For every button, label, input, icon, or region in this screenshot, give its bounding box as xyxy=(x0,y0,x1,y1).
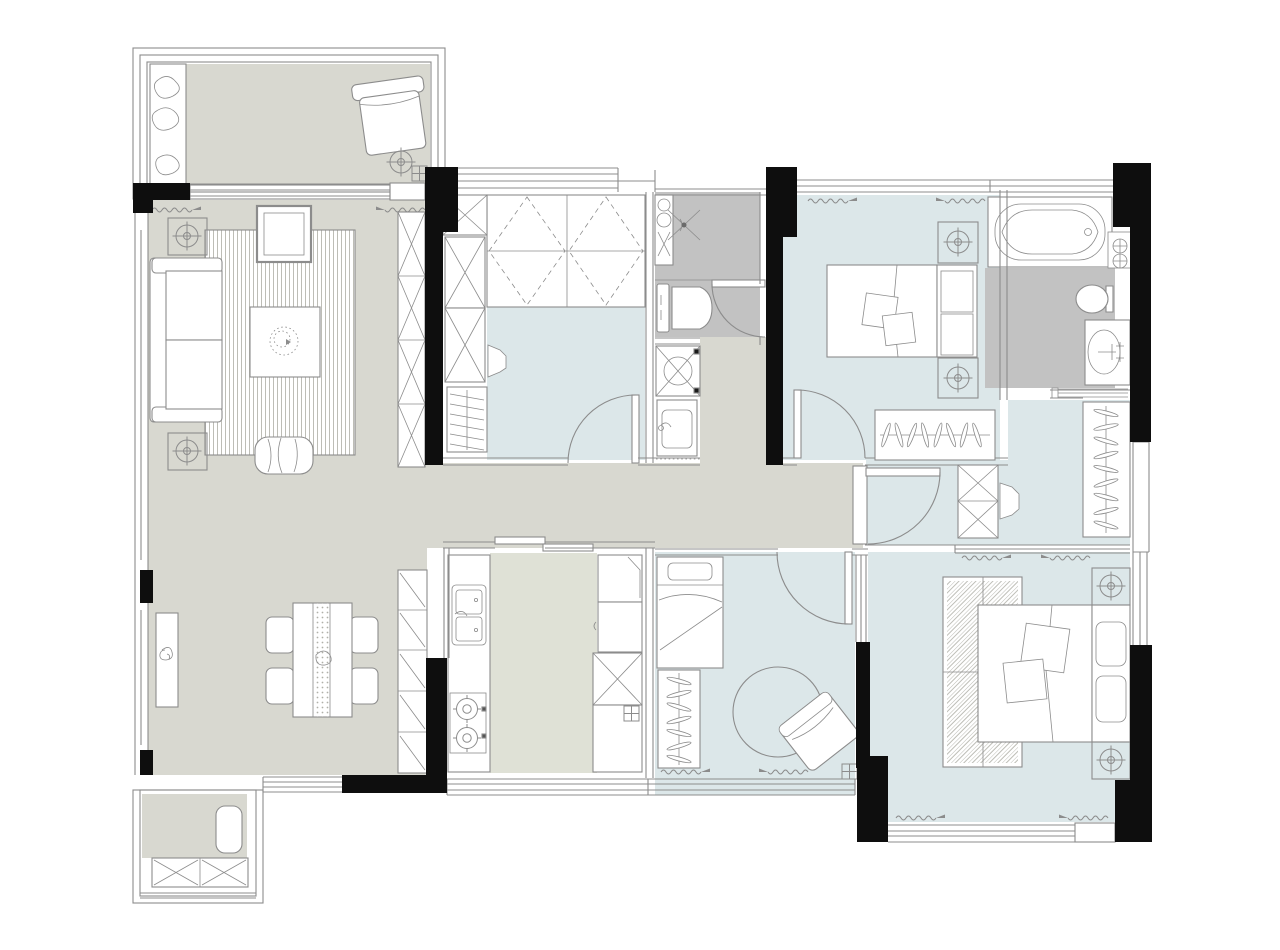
slanted-shoe-rack xyxy=(447,387,487,452)
tv-cabinet xyxy=(257,206,311,262)
bench-pouf xyxy=(255,437,313,474)
hanger-rack-vertical xyxy=(1083,402,1130,537)
dining-chair xyxy=(350,668,378,704)
shower-controls-icon xyxy=(1108,232,1131,268)
balcony-door-threshold xyxy=(390,183,425,200)
sofa xyxy=(150,258,222,422)
washbasin-counter xyxy=(655,195,673,265)
clothes-hanger-rack xyxy=(658,670,700,768)
window-band xyxy=(135,213,148,775)
window-band xyxy=(797,180,990,192)
washing-machine xyxy=(656,346,700,396)
cabinet-x-cells xyxy=(958,465,998,538)
dining-chair xyxy=(266,617,294,653)
toilet xyxy=(657,284,712,332)
toilet xyxy=(1076,285,1113,313)
window-band xyxy=(1133,552,1147,645)
wall-line xyxy=(865,545,1130,553)
dining-chair xyxy=(350,617,378,653)
wall-cabinet xyxy=(598,602,642,652)
vanity-sink xyxy=(1085,320,1130,385)
wall-line xyxy=(856,555,866,642)
wall-line xyxy=(655,338,700,344)
window-band xyxy=(458,168,655,192)
floor-tatami-room xyxy=(487,300,645,460)
window-band xyxy=(888,825,1075,842)
floor-plan-drawing xyxy=(0,0,1280,950)
tall-display-cabinet xyxy=(398,212,425,467)
floor-plan-page xyxy=(0,0,1280,950)
built-in-hanger-closet xyxy=(875,410,995,460)
double-bed xyxy=(827,265,977,357)
dining-chair xyxy=(266,668,294,704)
slatted-storage-cabinet xyxy=(398,570,427,773)
threshold xyxy=(1075,823,1115,842)
pillow xyxy=(668,563,712,580)
tatami-platform-bed xyxy=(487,195,645,307)
single-bed xyxy=(657,557,723,668)
cabinet-x-cell xyxy=(593,653,642,705)
fridge xyxy=(598,555,642,602)
kitchen-sink xyxy=(452,585,486,645)
floor-kitchen xyxy=(490,553,597,773)
laundry-sink xyxy=(657,400,697,456)
sideboard xyxy=(156,613,178,707)
window-band xyxy=(263,777,342,792)
base-cabinet xyxy=(593,705,642,772)
coffee-table xyxy=(250,307,320,377)
wall-line xyxy=(646,192,653,463)
storage-cabinet-x xyxy=(152,858,248,887)
balcony-mat xyxy=(216,806,242,853)
cooktop xyxy=(450,693,486,753)
wall-line xyxy=(1133,442,1149,552)
wall-line xyxy=(990,180,1113,192)
master-bed xyxy=(978,605,1130,742)
